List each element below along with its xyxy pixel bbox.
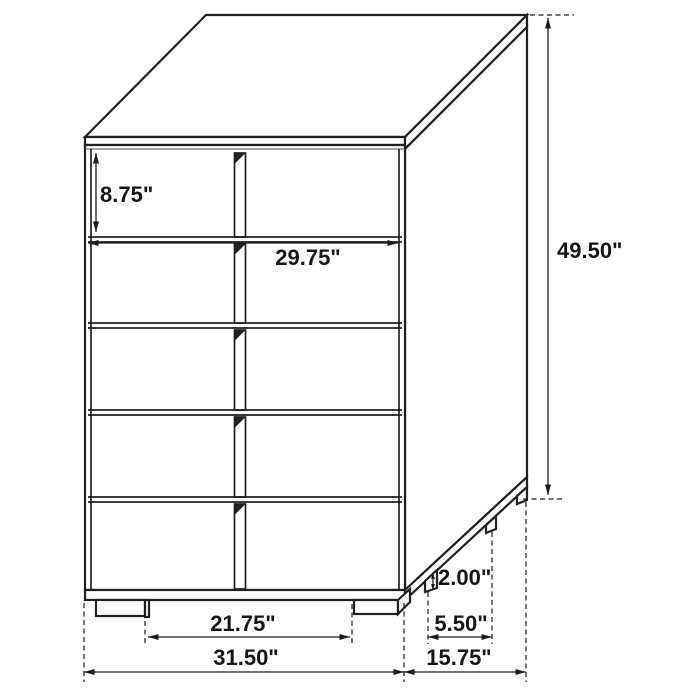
- chest-artwork: [85, 15, 527, 617]
- front-right-leg: [354, 600, 398, 614]
- dim-label-top-drawer-height: 8.75": [100, 182, 153, 207]
- dim-label-overall-height: 49.50": [557, 238, 622, 263]
- front-base-rail: [85, 590, 405, 600]
- chest-dimension-diagram: 8.75" 29.75" 49.50" 2.00" 5.50": [0, 0, 700, 700]
- dim-label-front-leg-spacing: 21.75": [210, 611, 275, 636]
- front-left-leg: [96, 600, 145, 616]
- dim-label-side-leg-spacing: 5.50": [434, 611, 487, 636]
- dim-leg-height: 2.00": [433, 565, 491, 590]
- diagram-canvas: 8.75" 29.75" 49.50" 2.00" 5.50": [0, 0, 700, 700]
- dim-label-leg-height: 2.00": [438, 565, 491, 590]
- top-front-edge: [85, 137, 405, 145]
- dim-label-overall-width: 31.50": [213, 645, 278, 670]
- dim-label-drawer-width: 29.75": [275, 245, 340, 270]
- dim-front-leg-spacing: 21.75": [145, 604, 352, 644]
- dim-label-overall-depth: 15.75": [426, 645, 491, 670]
- dim-overall-height: 49.50": [523, 15, 622, 499]
